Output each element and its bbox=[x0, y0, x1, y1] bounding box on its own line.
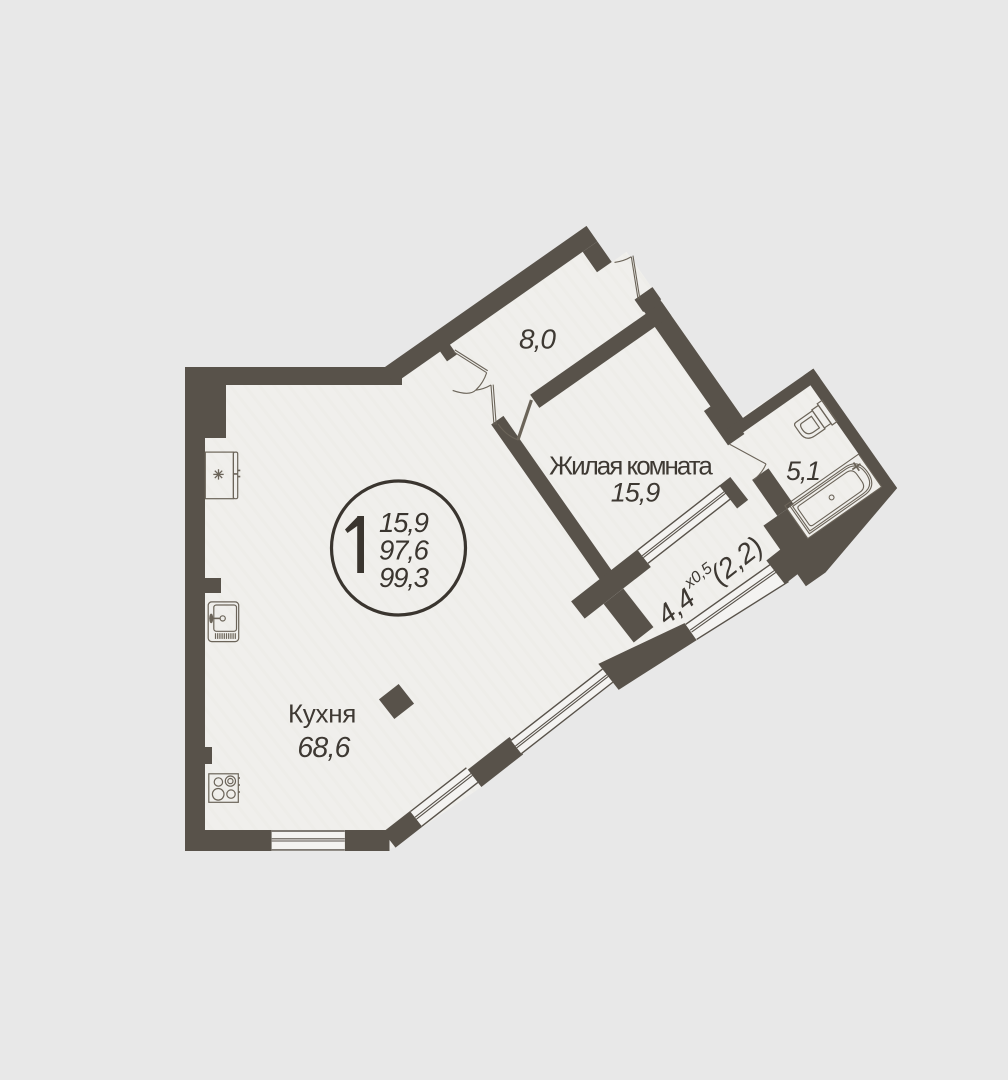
svg-text:97,6: 97,6 bbox=[379, 535, 430, 566]
svg-text:15,9: 15,9 bbox=[379, 507, 429, 538]
svg-text:99,3: 99,3 bbox=[379, 562, 430, 593]
svg-text:Жилая комната: Жилая комната bbox=[549, 451, 713, 481]
svg-text:15,9: 15,9 bbox=[611, 478, 661, 508]
svg-text:68,6: 68,6 bbox=[297, 732, 350, 764]
svg-text:Кухня: Кухня bbox=[288, 699, 356, 729]
svg-text:5,1: 5,1 bbox=[786, 456, 820, 486]
svg-text:8,0: 8,0 bbox=[519, 324, 556, 355]
